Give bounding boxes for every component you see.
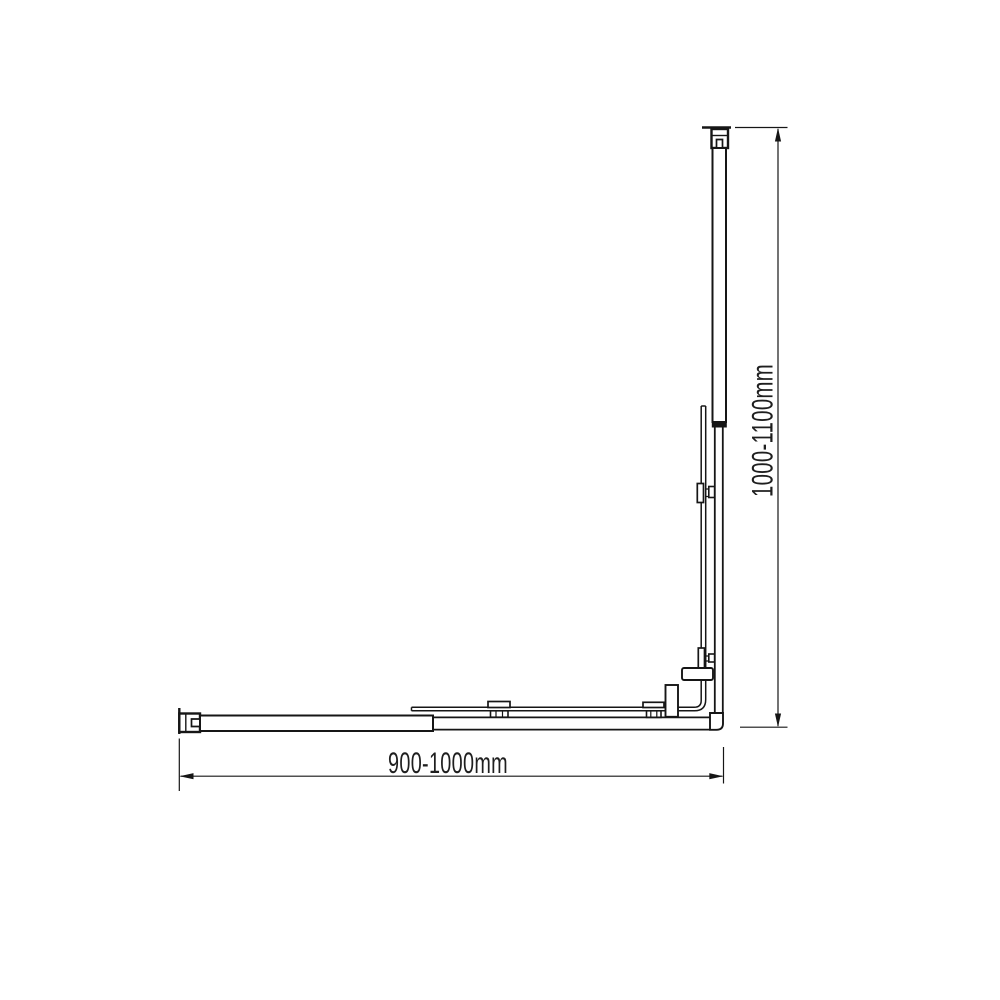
wall-profile-right (713, 148, 727, 422)
width-dimension-label: 900-1000mm (388, 747, 508, 780)
wall-bracket-top-notch (717, 140, 723, 149)
glass-fittings-right (682, 484, 715, 681)
arrow-up-icon (775, 128, 781, 142)
door-handle (682, 668, 713, 680)
panel-clamp-mid-plate (488, 702, 510, 708)
glass-fittings-bottom (488, 685, 678, 717)
drawing-canvas: 1000-1100mm 900-1000mm (0, 0, 1000, 1000)
glass-panel-edge-outer (412, 406, 706, 711)
arrow-down-icon (775, 714, 781, 728)
corner-foot (710, 713, 723, 730)
glass-panel-edge-inner (412, 406, 702, 707)
glass-clamp-upper (697, 484, 703, 503)
vertical-dimension: 1000-1100mm (735, 128, 788, 728)
corner-support-bracket (666, 685, 679, 717)
glass-clamp-upper-block (709, 487, 715, 498)
shower-screen-dimension-diagram: 1000-1100mm 900-1000mm (0, 0, 1000, 1000)
arrow-right-icon (709, 773, 723, 779)
bottom-rail-door-segment (200, 716, 433, 732)
wall-bracket-left-notch (192, 719, 201, 727)
arrow-left-icon (180, 773, 194, 779)
height-dimension-label: 1000-1100mm (747, 364, 780, 497)
panel-clamp-corner-block (647, 711, 662, 718)
glass-clamp-lower-block (709, 654, 715, 662)
horizontal-dimension: 900-1000mm (179, 739, 723, 792)
panel-clamp-mid-block (491, 711, 509, 717)
bottom-rail-assembly (179, 708, 723, 734)
panel-clamp-corner-plate (643, 702, 664, 707)
glass-clamp-lower (698, 648, 704, 668)
wall-profile-end-cap (712, 422, 727, 428)
glass-panel (412, 406, 706, 711)
